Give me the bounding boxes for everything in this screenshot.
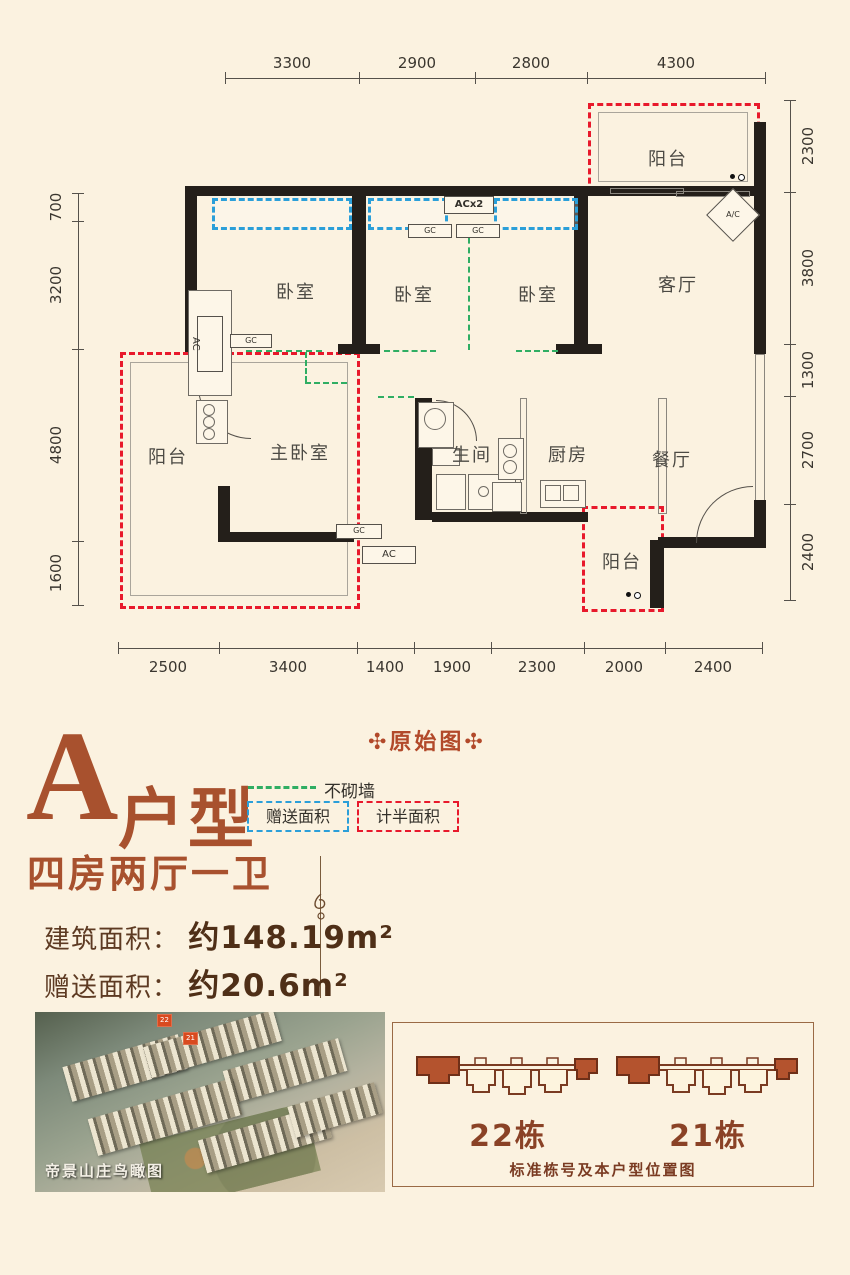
dim-right-3: 1300: [799, 348, 817, 392]
dim-top-3: 2800: [501, 54, 561, 72]
dim-line-top: [225, 78, 765, 79]
drain-dot: [626, 592, 631, 597]
nowall-seg: [516, 350, 558, 352]
room-bed3: 卧室: [518, 281, 558, 307]
dim-bot-3: 1400: [355, 658, 415, 676]
room-bed2: 卧室: [394, 281, 434, 307]
nowall-seg: [378, 396, 414, 398]
sink-bowl: [545, 485, 561, 501]
dim-left-1: 700: [47, 185, 65, 229]
tub-drain: [478, 486, 489, 497]
dim-bot-5: 2300: [507, 658, 567, 676]
dim-right-2: 3800: [799, 246, 817, 290]
dim-top-4: 4300: [646, 54, 706, 72]
room-kitchen: 厨房: [548, 441, 588, 467]
wall-bed-stub-1: [338, 344, 380, 354]
dim-bot-6: 2000: [594, 658, 654, 676]
room-balcony-bottom: 阳台: [602, 548, 642, 574]
wall-balcony-bottom-right: [650, 540, 664, 608]
build-area-value: 约148.19m²: [188, 920, 394, 956]
photo-caption: 帝景山庄鸟瞰图: [45, 1160, 164, 1181]
build-area-row: 建筑面积： 约148.19m²: [44, 912, 394, 957]
gc-tag: GC: [456, 224, 500, 238]
tick: [72, 349, 84, 350]
fridge: [492, 482, 522, 512]
dim-right-4: 2700: [799, 428, 817, 472]
location-panel: 22栋 21栋 标准栋号及本户型位置图: [392, 1022, 814, 1187]
dim-bot-1: 2500: [138, 658, 198, 676]
gift-area-label: 赠送面积：: [44, 973, 179, 1003]
original-plan-label: ✣原始图✣: [368, 724, 486, 756]
nowall-bed2-bed3: [468, 228, 470, 350]
room-balcony-top-right: 阳台: [648, 145, 688, 171]
photo-marker-21: 21: [183, 1032, 198, 1045]
wall-master-left: [218, 486, 230, 542]
flyer-page: { "colors":{ "background":"#fbf2e0","wal…: [0, 0, 850, 1275]
burner: [503, 444, 517, 458]
tick: [491, 642, 492, 654]
tick: [784, 504, 796, 505]
tick: [765, 72, 766, 84]
tick: [784, 600, 796, 601]
nowall-seg: [305, 382, 347, 384]
dim-left-4: 1600: [47, 551, 65, 595]
tick: [784, 192, 796, 193]
gc-tag: GC: [336, 524, 382, 539]
dim-bot-7: 2400: [683, 658, 743, 676]
dim-bot-2: 3400: [258, 658, 318, 676]
tick: [72, 541, 84, 542]
nowall-seg: [246, 350, 322, 352]
tick: [475, 72, 476, 84]
tick: [784, 396, 796, 397]
tick: [72, 193, 84, 194]
tick: [784, 344, 796, 345]
legend-half-area: 计半面积: [357, 801, 459, 832]
building-21-label: 21栋: [638, 1111, 778, 1155]
legend-gift-area: 赠送面积: [247, 801, 349, 832]
photo-marker-22: 22: [157, 1014, 172, 1027]
laundry-dial: [203, 404, 215, 416]
legend-no-wall-label: 不砌墙: [324, 777, 375, 802]
gift-strip-bed1: [212, 198, 352, 230]
tick: [359, 72, 360, 84]
ac-diamond: A/C: [706, 188, 760, 242]
gift-area-row: 赠送面积： 约20.6m²: [44, 960, 349, 1005]
laundry-dial: [203, 428, 215, 440]
tick: [72, 605, 84, 606]
acx2-tag: ACx2: [444, 196, 494, 214]
tick: [118, 642, 119, 654]
photo-buildings-cluster: [287, 1082, 382, 1138]
dim-top-1: 3300: [262, 54, 322, 72]
panel-caption: 标准栋号及本户型位置图: [393, 1159, 813, 1180]
balcony-slider: [610, 188, 684, 194]
dim-right-1: 2300: [799, 124, 817, 168]
tick: [414, 642, 415, 654]
tick: [225, 72, 226, 84]
dim-line-bottom: [118, 648, 763, 649]
dim-line-right: [790, 100, 791, 600]
tick: [784, 100, 796, 101]
gc-tag: GC: [230, 334, 272, 348]
toilet-bowl: [424, 408, 446, 430]
room-bed1: 卧室: [276, 278, 316, 304]
washer: [436, 474, 466, 510]
window-right: [755, 354, 765, 502]
floor-plan: 3300 2900 2800 4300 700 3200 4800 1600 2…: [0, 0, 850, 700]
ac-tag: AC: [362, 546, 416, 564]
drain-dot: [634, 592, 641, 599]
tick: [357, 642, 358, 654]
room-balcony-left: 阳台: [148, 443, 188, 469]
dim-left-3: 4800: [47, 423, 65, 467]
dim-left-2: 3200: [47, 263, 65, 307]
room-dining: 餐厅: [652, 446, 692, 472]
nowall-seg: [305, 352, 307, 382]
building-22-footprint: [415, 1051, 601, 1105]
wall-kitchen-bottom: [432, 512, 588, 522]
gift-area-value: 约20.6m²: [188, 968, 348, 1004]
aerial-photo: 22 21 帝景山庄鸟瞰图: [35, 1012, 385, 1192]
layout-description: 四房两厅一卫: [27, 843, 273, 898]
room-living: 客厅: [658, 271, 698, 297]
dim-bot-4: 1900: [422, 658, 482, 676]
drain-dot: [730, 174, 735, 179]
tick: [587, 72, 588, 84]
tick: [665, 642, 666, 654]
building-21-footprint: [615, 1051, 801, 1105]
door-entry: [696, 486, 753, 543]
wall-bed-stub-2: [556, 344, 602, 354]
nowall-seg: [384, 350, 436, 352]
gc-tag: GC: [408, 224, 452, 238]
sink-bowl: [563, 485, 579, 501]
ac-tag-vertical: AC: [197, 316, 223, 372]
ac-diamond-label: A/C: [715, 197, 751, 233]
room-bath: 生间: [452, 441, 492, 467]
wall-master-bottom: [220, 532, 354, 542]
tick: [762, 642, 763, 654]
laundry-dial: [203, 416, 215, 428]
gift-strip-bed3: [494, 198, 578, 230]
tick: [72, 221, 84, 222]
build-area-label: 建筑面积：: [44, 925, 179, 955]
dim-right-5: 2400: [799, 530, 817, 574]
burner: [503, 460, 517, 474]
tick: [584, 642, 585, 654]
dim-top-2: 2900: [387, 54, 447, 72]
building-22-label: 22栋: [438, 1111, 578, 1155]
room-master: 主卧室: [270, 439, 330, 465]
wall-bed1-bed2: [352, 196, 366, 354]
dim-line-left: [78, 193, 79, 606]
tick: [219, 642, 220, 654]
legend-green-swatch: [248, 786, 316, 789]
drain-dot: [738, 174, 745, 181]
type-letter: A: [26, 712, 118, 840]
wall-right-upper: [754, 122, 766, 354]
